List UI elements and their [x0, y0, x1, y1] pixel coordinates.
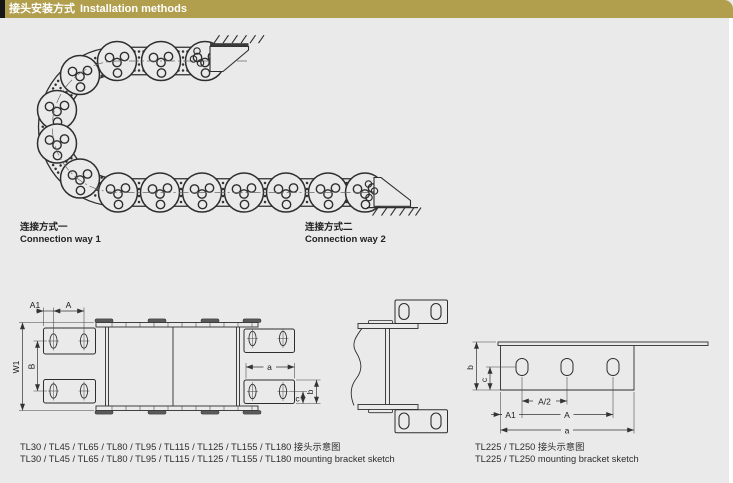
dim-label-a-right: a	[565, 426, 570, 436]
side-top-rail	[358, 324, 418, 329]
dimensions-right-sketch: b c A/2 A1 A a	[465, 342, 634, 436]
bracket-sketch-side-view	[351, 300, 447, 433]
slot-hole-1	[516, 359, 528, 376]
caption-tl225-tl250-zh: TL225 / TL250 接头示意图	[475, 442, 639, 454]
side-link-bar	[386, 329, 390, 405]
catalog-page: 接头安装方式Installation methods	[0, 0, 733, 483]
link-side-bars	[106, 327, 240, 406]
dim-label-b-right: b	[465, 365, 475, 370]
dim-label-A1-left: A1	[30, 300, 41, 310]
break-line	[351, 324, 365, 406]
dim-label-B-left: B	[27, 363, 37, 369]
dim-label-A-right: A	[564, 410, 570, 420]
caption-tl225-tl250: TL225 / TL250 接头示意图 TL225 / TL250 mounti…	[475, 442, 639, 465]
bracket-sketch-tl30-tl180: A1 A W1 B a c b	[11, 300, 321, 414]
chain-bottom-rail	[96, 406, 258, 411]
caption-tl30-tl180: TL30 / TL45 / TL65 / TL80 / TL95 / TL115…	[20, 442, 395, 465]
caption-tl225-tl250-en: TL225 / TL250 mounting bracket sketch	[475, 454, 639, 466]
chain-top-rail	[96, 323, 258, 328]
connection-way-2-zh: 连接方式二	[305, 222, 386, 234]
dim-label-W1-left: W1	[11, 360, 21, 373]
slot-hole-2	[561, 359, 573, 376]
connection-way-2-en: Connection way 2	[305, 234, 386, 246]
caption-tl30-tl180-en: TL30 / TL45 / TL65 / TL80 / TL95 / TL115…	[20, 454, 395, 466]
side-bottom-rail	[358, 405, 418, 410]
ground-hatch-bottom	[373, 208, 422, 216]
dim-label-b-left: b	[305, 389, 315, 394]
dim-label-c-right: c	[479, 377, 489, 382]
dim-label-Ahalf-right: A/2	[538, 397, 551, 407]
caption-tl30-tl180-zh: TL30 / TL45 / TL65 / TL80 / TL95 / TL115…	[20, 442, 395, 454]
bracket-plate-top-right	[244, 329, 295, 353]
connection-way-1-zh: 连接方式一	[20, 222, 101, 234]
connection-way-1-label: 连接方式一 Connection way 1	[20, 222, 101, 245]
ground-hatch-top	[214, 35, 264, 43]
bracket-sketch-tl225-tl250: b c A/2 A1 A a	[465, 342, 708, 436]
dim-label-A-left: A	[66, 300, 72, 310]
dim-label-a-left: a	[267, 362, 272, 372]
cable-chain-drawing	[38, 35, 422, 215]
slot-hole-3	[607, 359, 619, 376]
rail-link-ticks	[112, 323, 252, 411]
dim-label-A1-right: A1	[505, 410, 516, 420]
dim-label-c-left: c	[295, 394, 300, 404]
connection-way-2-label: 连接方式二 Connection way 2	[305, 222, 386, 245]
connection-way-1-en: Connection way 1	[20, 234, 101, 246]
mounting-rail	[210, 43, 249, 46]
flange-bar	[498, 342, 708, 346]
